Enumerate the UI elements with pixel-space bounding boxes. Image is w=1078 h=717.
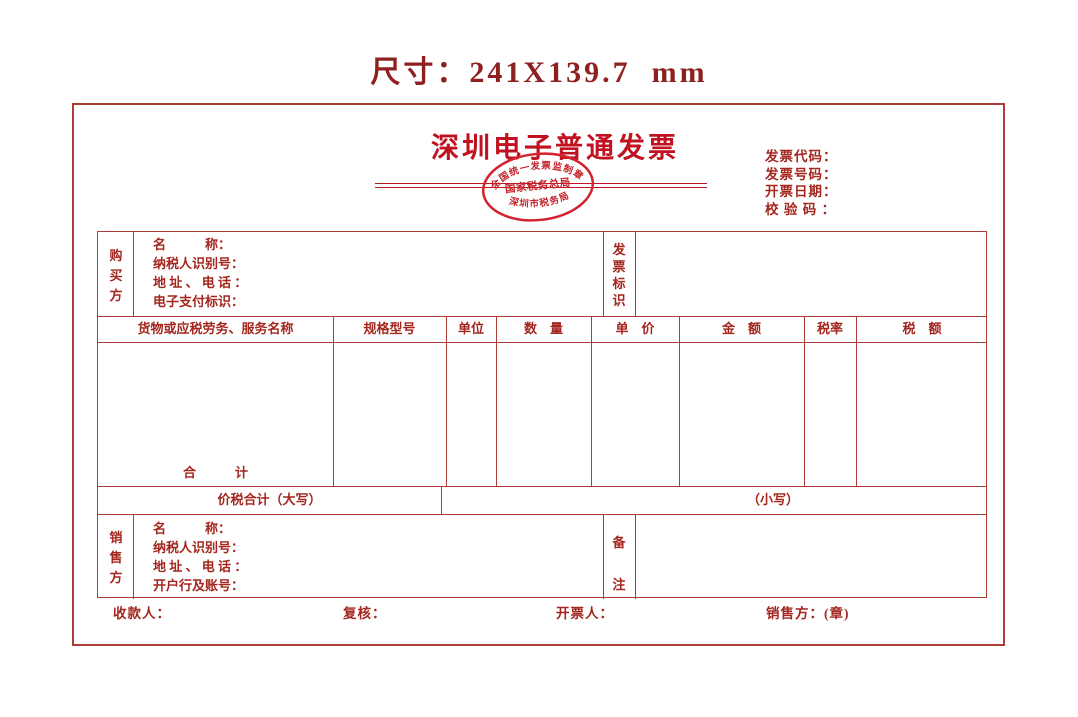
tax-bureau-stamp: 全国统一发票监制章 国家税务总局 深圳市税务局 (474, 143, 601, 231)
sum-row-divider-rule (441, 486, 442, 514)
buyer-address-phone-label: 地 址 、 电 话 ： (153, 276, 247, 289)
invoice-checksum-label: 校 验 码 ： (765, 201, 838, 219)
buyer-tax-id-label: 纳税人识别号： (153, 257, 244, 270)
col-header-amount: 金 额 (679, 316, 804, 342)
buyer-epay-id-label: 电子支付标识： (153, 295, 244, 308)
remark-value-cell (635, 514, 988, 599)
buyer-side-col-rule (133, 232, 134, 316)
seller-tax-id-label: 纳税人识别号： (153, 541, 244, 554)
col-header-unit: 单位 (446, 316, 496, 342)
invoice-flag-value-cell (635, 232, 988, 316)
items-total-label: 合 计 (98, 460, 333, 486)
invoice-table: 购 买 方 名 称： 纳税人识别号： 地 址 、 电 话 ： 电子支付标识： 发… (97, 231, 987, 598)
buyer-side-label: 购 买 方 (109, 246, 123, 306)
seller-seal-label: 销售方：(章) (766, 607, 850, 621)
amount-in-words-label: 价税合计（大写） (98, 486, 441, 514)
invoice-number-label: 发票号码： (765, 166, 838, 184)
col-header-tax-amount: 税 额 (856, 316, 988, 342)
seller-bank-account-label: 开户行及账号： (153, 579, 244, 592)
reviewer-label: 复核： (343, 607, 387, 621)
col-header-quantity: 数 量 (496, 316, 591, 342)
invoice-page: 尺寸：241X139.7 mm 深圳电子普通发票 全国统一发票监制章 国家税务总… (0, 0, 1078, 717)
buyer-name-label: 名 称： (153, 238, 231, 251)
flag-col-left-rule (603, 232, 604, 316)
col-header-tax-rate: 税率 (804, 316, 856, 342)
payee-label: 收款人： (113, 607, 171, 621)
stamp-middle-text: 国家税务总局 (504, 176, 571, 196)
remark-col-left-rule (603, 514, 604, 599)
invoice-flag-side-label: 发 票 标 识 (612, 241, 626, 309)
col-header-goods-name: 货物或应税劳务、服务名称 (98, 316, 333, 342)
invoice-date-label: 开票日期： (765, 183, 838, 201)
invoice-code-label: 发票代码： (765, 148, 838, 166)
seller-side-col-rule (133, 514, 134, 599)
amount-in-figures-label: （小写） (723, 486, 823, 514)
seller-side-label: 销 售 方 (109, 528, 123, 588)
col-header-unit-price: 单 价 (591, 316, 679, 342)
invoice-meta-fields: 发票代码： 发票号码： 开票日期： 校 验 码 ： (765, 148, 838, 218)
remark-side-label: 备 注 (612, 532, 626, 595)
page-size-title: 尺寸：241X139.7 mm (0, 47, 1078, 91)
col-header-spec-model: 规格型号 (333, 316, 446, 342)
issuer-label: 开票人： (556, 607, 614, 621)
seller-name-label: 名 称： (153, 522, 231, 535)
seller-address-phone-label: 地 址 、 电 话 ： (153, 560, 247, 573)
